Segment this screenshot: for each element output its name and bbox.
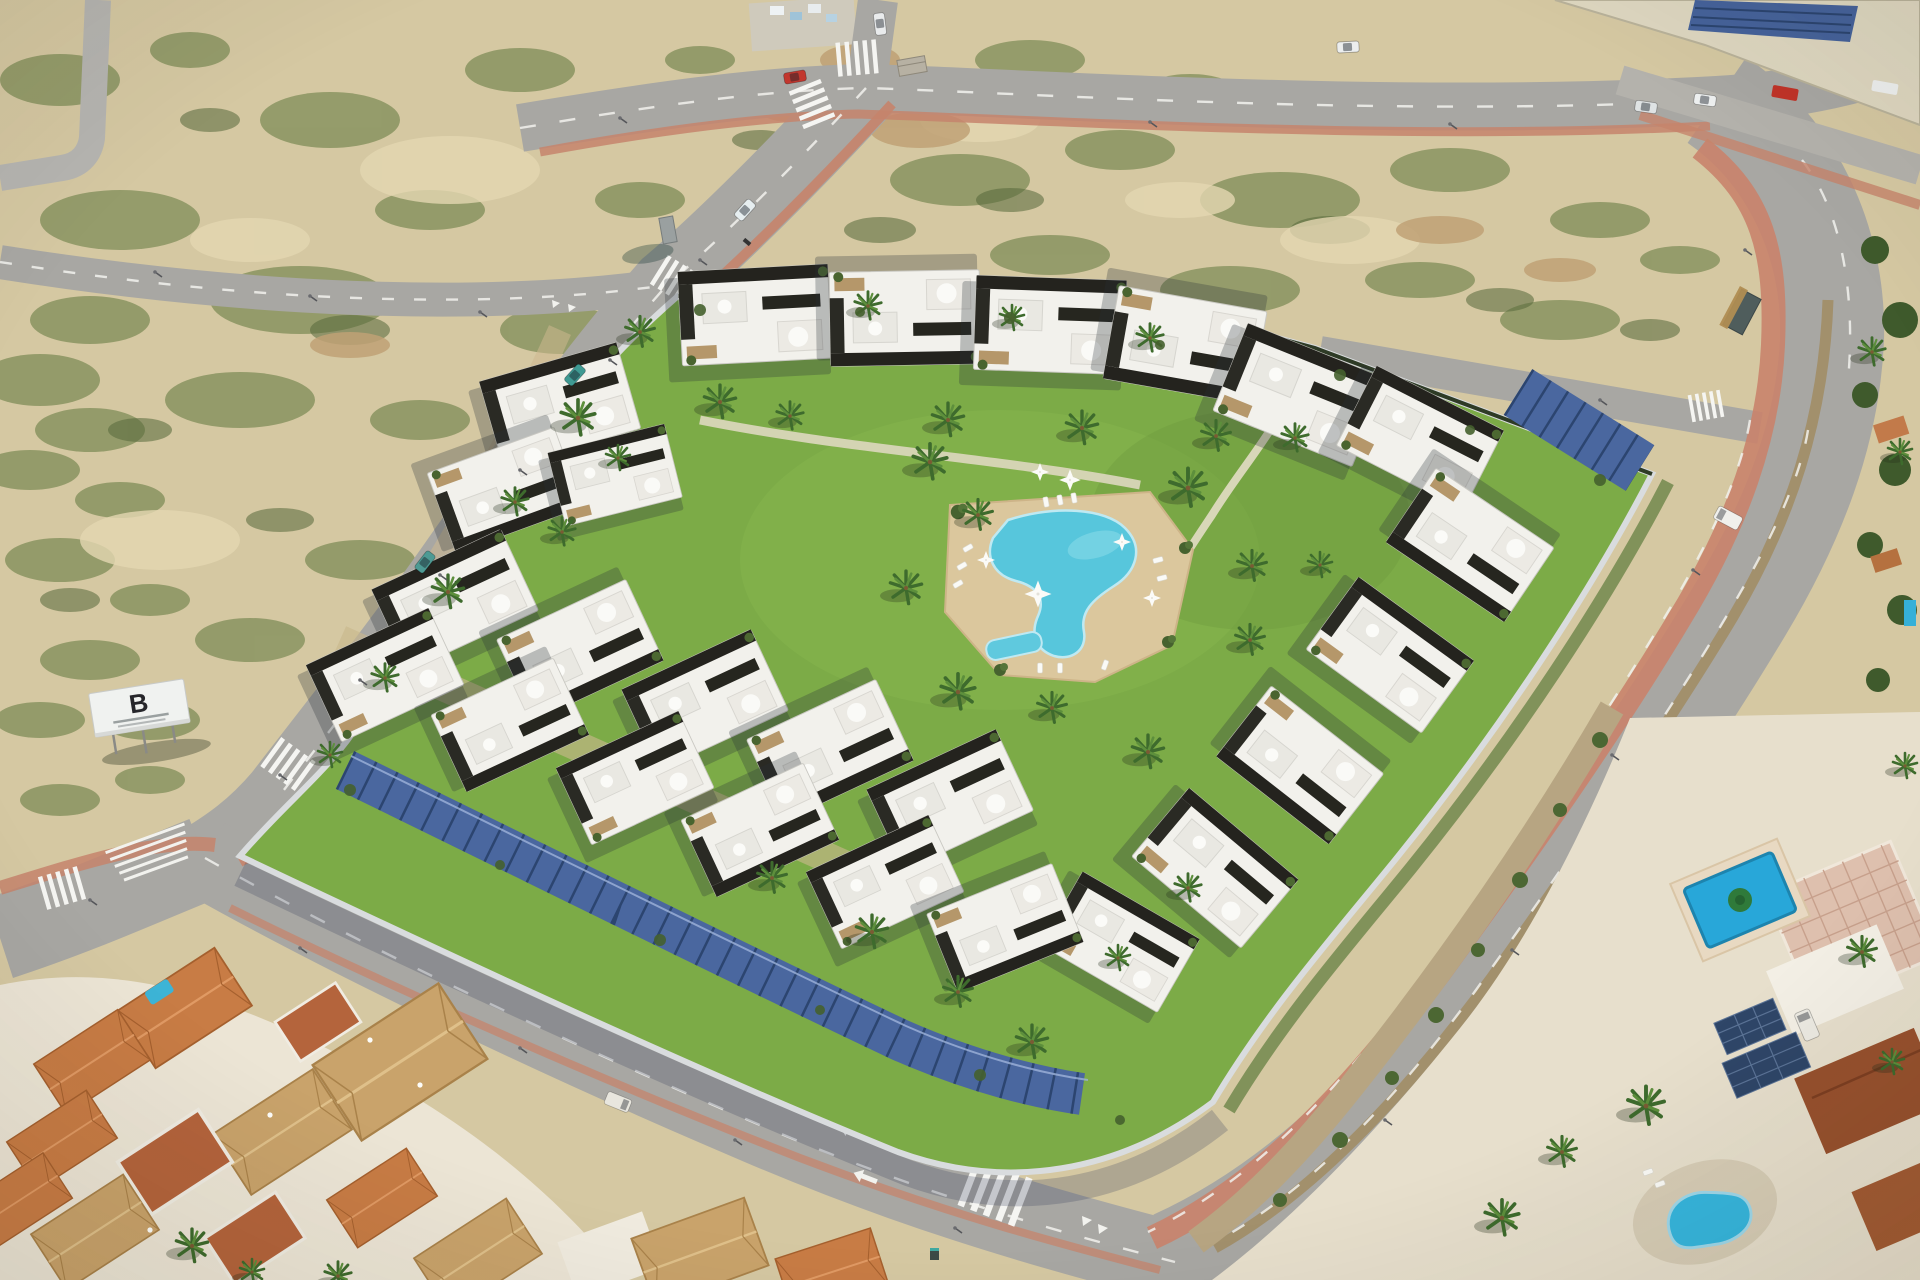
aerial-scene: B (0, 0, 1920, 1280)
aerial-photo-stage: B (0, 0, 1920, 1280)
photo-vignette (0, 0, 1920, 1280)
